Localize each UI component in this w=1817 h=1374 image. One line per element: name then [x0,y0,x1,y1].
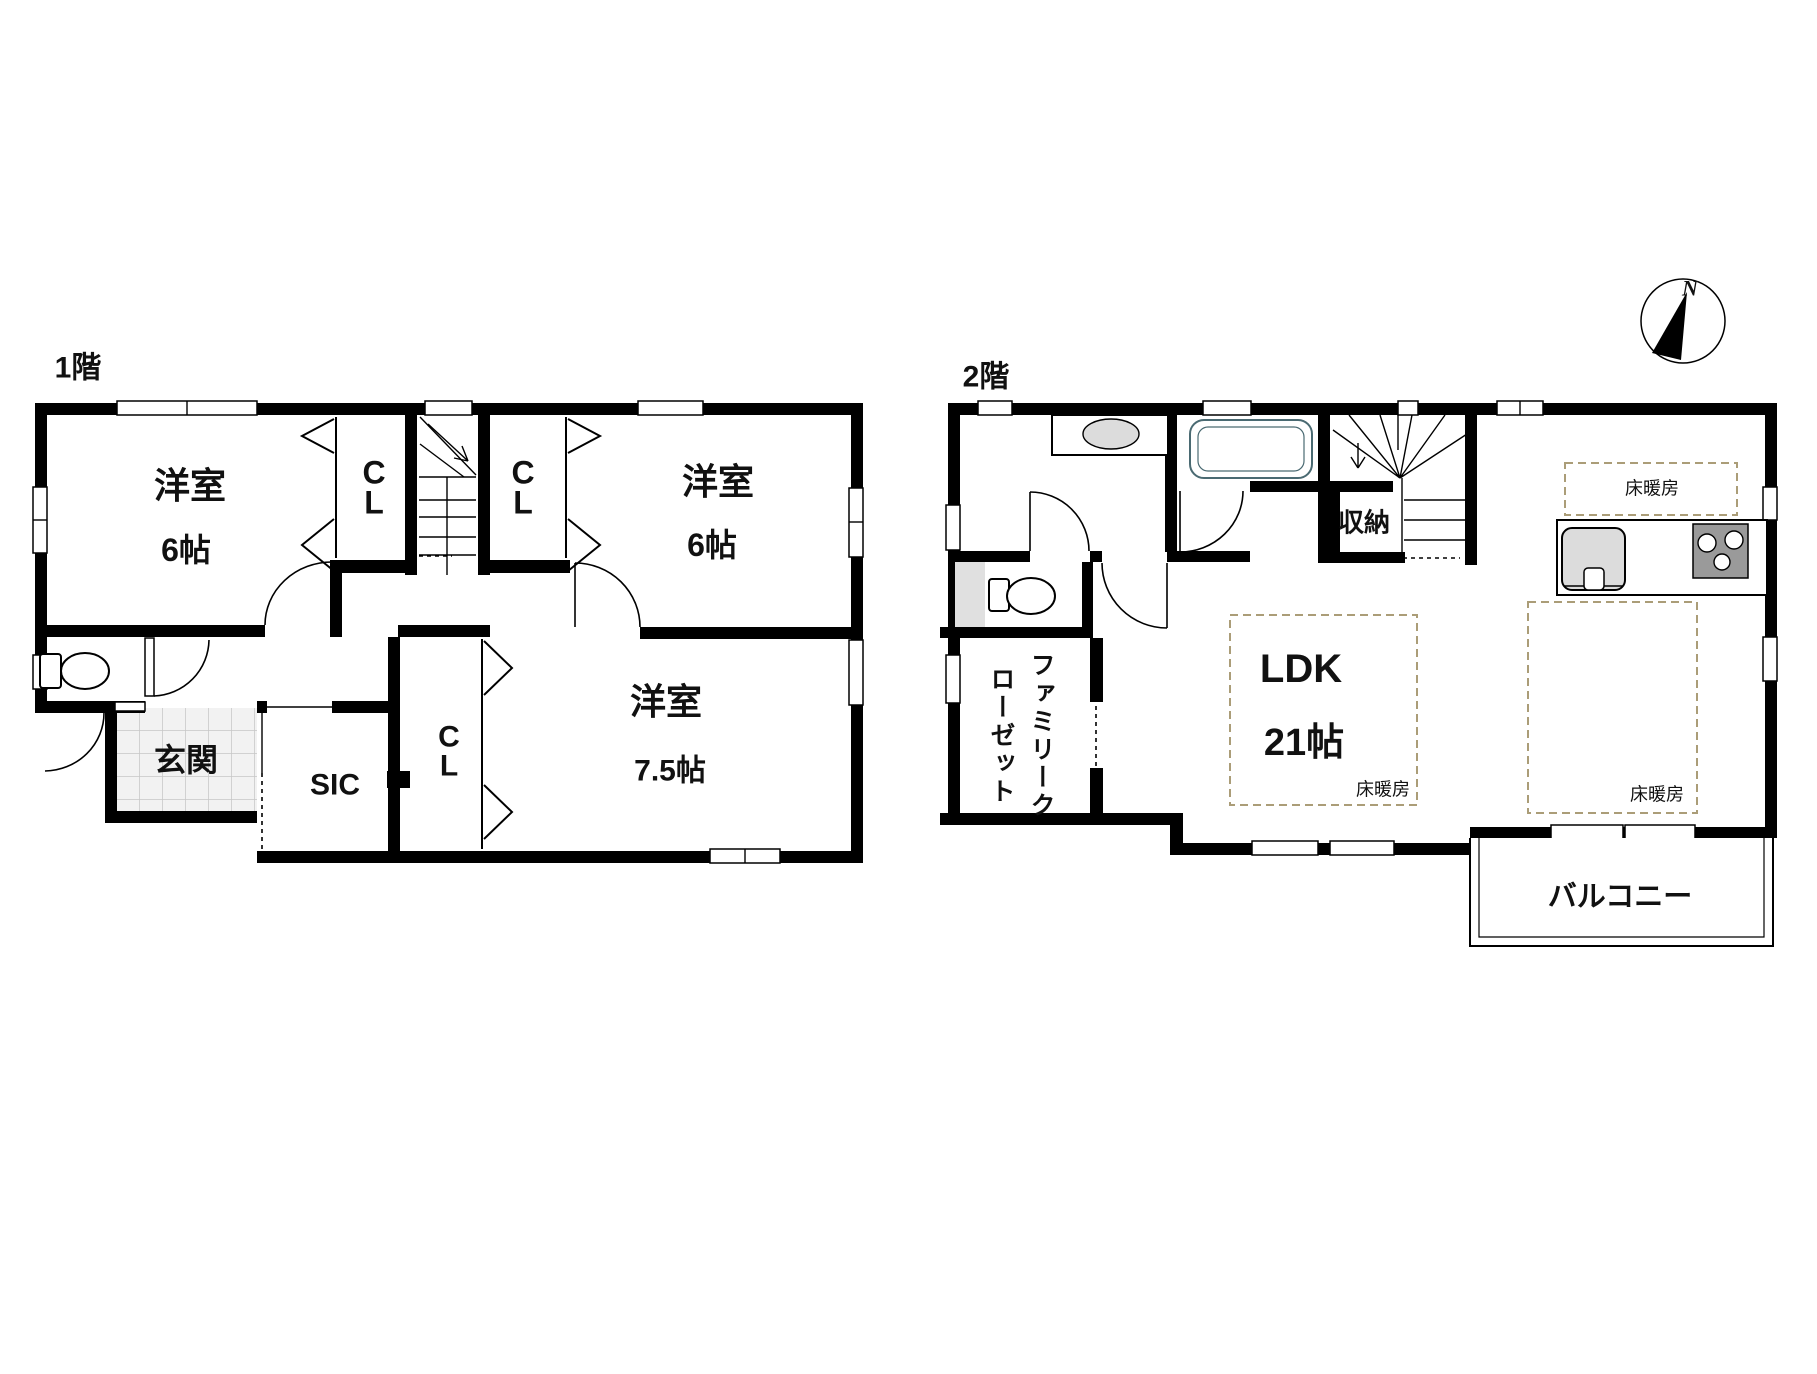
floor-heating-label-ldk-left: 床暖房 [1356,781,1410,800]
closet-nw-label: CL [361,458,387,519]
floorplan-page: 1階 洋室 6帖 CL CL 洋室 6帖 玄関 SIC CL 洋室 7.5帖 2… [0,0,1817,1374]
bathtub-icon [1190,420,1312,478]
closet-s-label: CL [436,724,462,781]
closet-ne-label: CL [510,458,536,519]
floor-heating-label-ldk-right: 床暖房 [1630,786,1684,805]
compass-north-label: N [1682,276,1698,299]
washbasin-icon [1052,415,1168,455]
room-ne-name: 洋室 [682,463,754,501]
room-ne-size: 6帖 [687,529,737,563]
entrance-label: 玄関 [154,744,218,778]
room-nw-size: 6帖 [161,534,211,568]
stairs-floor1-icon [419,417,476,575]
kitchen-counter-icon [1557,520,1767,595]
room-nw-name: 洋室 [154,467,226,505]
toilet-icon-floor2 [955,562,1055,627]
ldk-name: LDK [1260,648,1342,690]
ldk-size: 21帖 [1264,724,1344,764]
room-s-size: 7.5帖 [634,755,706,787]
family-closet-label: ファミリークローゼット [985,648,1061,823]
floor2-label: 2階 [963,361,1010,393]
balcony-label: バルコニー [1548,882,1692,912]
floorplan-drawing [0,0,1817,1374]
stove-icon [1693,524,1748,578]
floor-heating-label-kitchen: 床暖房 [1625,480,1679,499]
storage-label: 収納 [1338,509,1390,536]
floor1-label: 1階 [55,352,102,384]
shoe-closet-label: SIC [310,769,360,801]
room-s-name: 洋室 [630,683,702,721]
toilet-icon-floor1 [40,653,109,689]
